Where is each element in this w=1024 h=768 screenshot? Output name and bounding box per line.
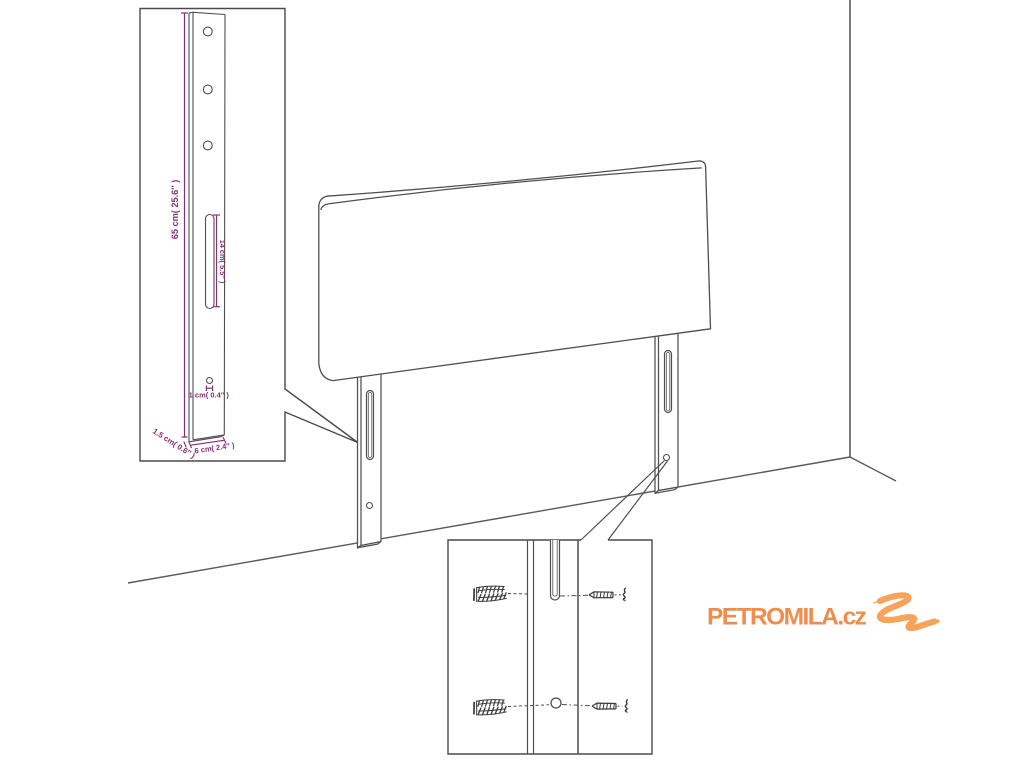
svg-text:65 cm( 25.6″ ): 65 cm( 25.6″ ) [170,180,180,240]
svg-text:1 cm( 0.4″ ): 1 cm( 0.4″ ) [189,390,230,399]
svg-text:PETROMILA.cz: PETROMILA.cz [707,604,867,631]
svg-text:14 cm( 5.5″ ): 14 cm( 5.5″ ) [218,240,227,284]
